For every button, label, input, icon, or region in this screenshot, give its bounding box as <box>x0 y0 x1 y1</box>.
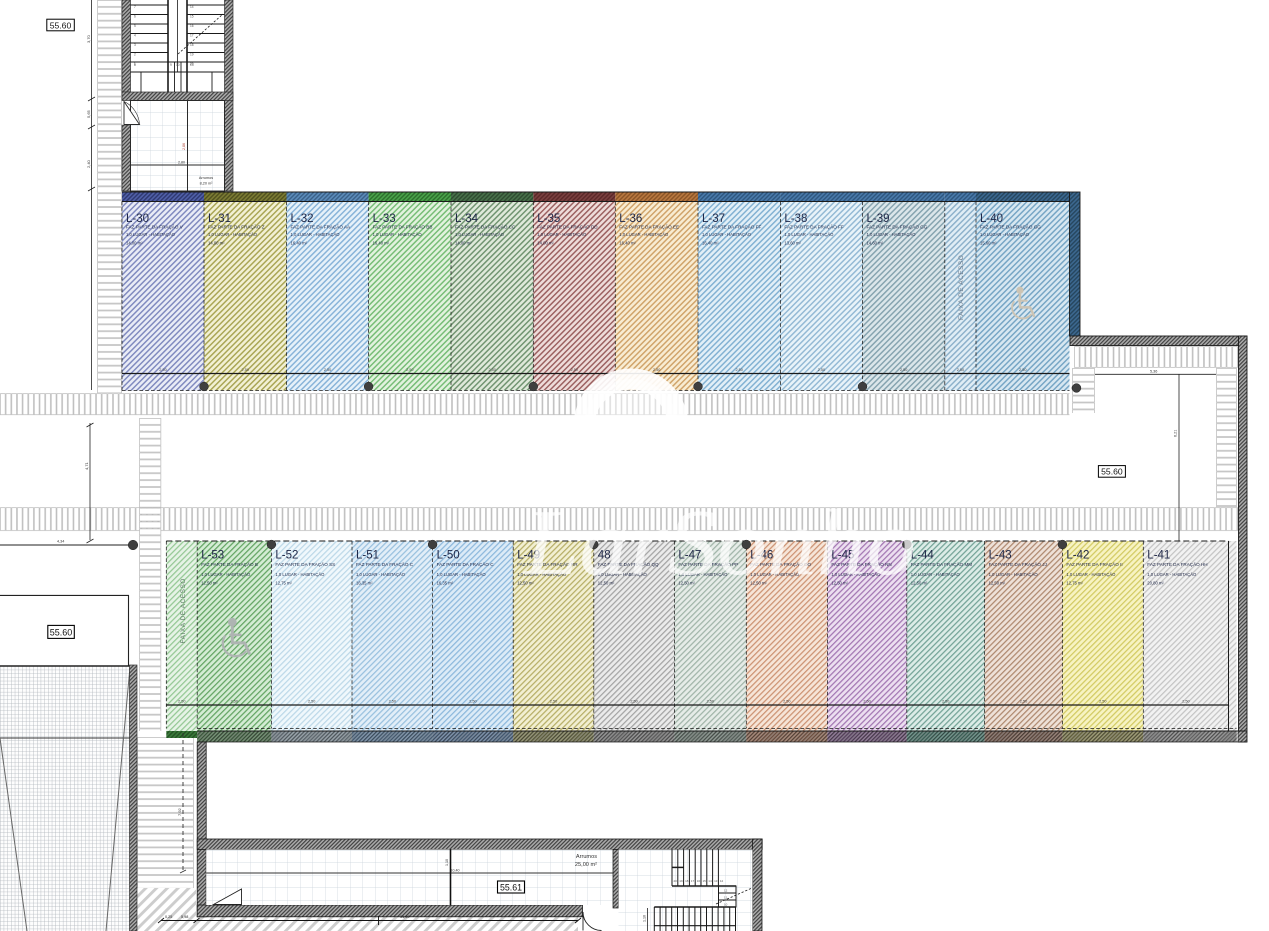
svg-text:14,60 m²: 14,60 m² <box>867 241 884 246</box>
svg-text:10: 10 <box>724 903 728 907</box>
svg-text:1,0 LUGAR - HABITAÇÃO: 1,0 LUGAR - HABITAÇÃO <box>437 572 487 577</box>
svg-text:18: 18 <box>685 879 689 883</box>
svg-text:2,50: 2,50 <box>406 368 413 372</box>
svg-text:2,50: 2,50 <box>942 700 949 704</box>
svg-text:12,50 m²: 12,50 m² <box>201 581 218 586</box>
svg-text:FAZ PARTE DA FRAÇÃO DD: FAZ PARTE DA FRAÇÃO DD <box>537 224 598 230</box>
svg-text:2,50: 2,50 <box>178 700 185 704</box>
svg-text:2,50: 2,50 <box>389 700 396 704</box>
svg-text:FAZ PARTE DA FRAÇÃO BB: FAZ PARTE DA FRAÇÃO BB <box>373 224 433 230</box>
svg-text:2,50: 2,50 <box>1099 700 1106 704</box>
svg-text:2,50: 2,50 <box>231 700 238 704</box>
svg-text:6,21: 6,21 <box>1174 430 1178 437</box>
svg-text:FAZ PARTE DA FRAÇÃO GG: FAZ PARTE DA FRAÇÃO GG <box>867 224 928 230</box>
svg-text:12,75 m²: 12,75 m² <box>1066 581 1083 586</box>
svg-text:2,50: 2,50 <box>242 368 249 372</box>
svg-text:7,92: 7,92 <box>177 807 182 816</box>
svg-text:1,0 LUGAR - HABITAÇÃO: 1,0 LUGAR - HABITAÇÃO <box>867 232 917 237</box>
svg-text:12,75 m²: 12,75 m² <box>275 581 292 586</box>
svg-text:1,0 LUGAR - HABITAÇÃO: 1,0 LUGAR - HABITAÇÃO <box>275 572 325 577</box>
svg-text:19: 19 <box>679 879 683 883</box>
svg-text:3: 3 <box>134 43 136 47</box>
svg-text:Arrumos: Arrumos <box>576 854 597 860</box>
svg-text:2,86: 2,86 <box>182 143 186 150</box>
svg-text:FAZ PARTE DA FRAÇÃO EE: FAZ PARTE DA FRAÇÃO EE <box>619 224 679 230</box>
svg-text:L-41: L-41 <box>1147 550 1170 562</box>
svg-text:20: 20 <box>674 879 678 883</box>
svg-text:3,70: 3,70 <box>86 34 91 43</box>
svg-text:FAZ PARTE DA FRAÇÃO JJ: FAZ PARTE DA FRAÇÃO JJ <box>989 561 1047 567</box>
svg-text:L-43: L-43 <box>989 550 1012 562</box>
svg-text:8: 8 <box>134 63 136 67</box>
svg-text:2,50: 2,50 <box>957 368 964 372</box>
svg-text:L-33: L-33 <box>373 213 396 225</box>
svg-text:L-36: L-36 <box>619 213 642 225</box>
svg-text:16,40 m²: 16,40 m² <box>619 241 636 246</box>
svg-text:L-32: L-32 <box>291 213 314 225</box>
svg-text:55.60: 55.60 <box>1101 467 1123 477</box>
svg-text:FAZ PARTE DA FRAÇÃO HH: FAZ PARTE DA FRAÇÃO HH <box>1147 561 1207 567</box>
svg-text:13: 13 <box>714 879 718 883</box>
svg-text:55.60: 55.60 <box>50 628 73 638</box>
svg-text:10,40: 10,40 <box>451 869 460 873</box>
svg-text:4,34: 4,34 <box>57 540 64 544</box>
svg-text:20,80 m²: 20,80 m² <box>1147 581 1164 586</box>
svg-text:FAZ PARTE DA FRAÇÃO AA: FAZ PARTE DA FRAÇÃO AA <box>291 224 351 230</box>
svg-text:16: 16 <box>190 24 194 28</box>
svg-text:18: 18 <box>190 43 194 47</box>
svg-text:15: 15 <box>190 15 194 19</box>
svg-text:1,0 LUGAR - HABITAÇÃO: 1,0 LUGAR - HABITAÇÃO <box>911 572 961 577</box>
svg-text:L-52: L-52 <box>275 550 298 562</box>
svg-text:FAZ PARTE DA FRAÇÃO FF: FAZ PARTE DA FRAÇÃO FF <box>702 224 761 230</box>
svg-text:11: 11 <box>724 896 727 900</box>
svg-text:2,50: 2,50 <box>324 368 331 372</box>
svg-text:5,36: 5,36 <box>1150 370 1157 374</box>
svg-text:1,0 LUGAR - HABITAÇÃO: 1,0 LUGAR - HABITAÇÃO <box>126 232 176 237</box>
svg-text:14,00 m²: 14,00 m² <box>126 241 143 246</box>
svg-text:FAZ PARTE DA FRAÇÃO FF: FAZ PARTE DA FRAÇÃO FF <box>784 224 843 230</box>
svg-text:2,50: 2,50 <box>159 368 166 372</box>
svg-text:4,71: 4,71 <box>84 461 89 470</box>
svg-text:L-34: L-34 <box>455 213 479 225</box>
svg-text:FAZ PARTE DA FRAÇÃO GG: FAZ PARTE DA FRAÇÃO GG <box>980 224 1041 230</box>
svg-text:16,40 m²: 16,40 m² <box>291 241 308 246</box>
svg-text:FAZ PARTE DA FRAÇÃO V: FAZ PARTE DA FRAÇÃO V <box>126 224 184 230</box>
svg-text:1,10: 1,10 <box>445 859 449 866</box>
svg-text:14: 14 <box>708 879 712 883</box>
svg-text:2,50: 2,50 <box>900 368 907 372</box>
svg-text:2,50: 2,50 <box>488 368 495 372</box>
svg-text:1,0 LUGAR - HABITAÇÃO: 1,0 LUGAR - HABITAÇÃO <box>373 232 423 237</box>
svg-text:Arrumos: Arrumos <box>199 176 213 180</box>
svg-text:6: 6 <box>134 15 136 19</box>
svg-text:1,0 LUGAR - HABITAÇÃO: 1,0 LUGAR - HABITAÇÃO <box>619 232 669 237</box>
svg-text:25,00 m²: 25,00 m² <box>575 862 597 868</box>
svg-text:2,80: 2,80 <box>178 161 185 165</box>
svg-text:16,40 m²: 16,40 m² <box>702 241 719 246</box>
svg-text:L-51: L-51 <box>356 550 379 562</box>
svg-text:15: 15 <box>703 879 707 883</box>
svg-text:L-40: L-40 <box>980 213 1003 225</box>
svg-text:15,60 m²: 15,60 m² <box>980 241 997 246</box>
svg-text:14,00 m²: 14,00 m² <box>208 241 225 246</box>
svg-text:16,35 m²: 16,35 m² <box>356 581 373 586</box>
svg-text:FAZ PARTE DA FRAÇÃO C: FAZ PARTE DA FRAÇÃO C <box>356 561 414 567</box>
svg-text:7: 7 <box>134 5 136 9</box>
svg-text:LarSonho: LarSonho <box>522 491 916 595</box>
svg-text:FAZ PARTE DA FRAÇÃO MM: FAZ PARTE DA FRAÇÃO MM <box>911 561 973 567</box>
svg-text:1,10: 1,10 <box>643 915 647 922</box>
svg-text:16,35 m²: 16,35 m² <box>437 581 454 586</box>
svg-text:1,0 LUGAR - HABITAÇÃO: 1,0 LUGAR - HABITAÇÃO <box>201 572 251 577</box>
svg-text:2,50: 2,50 <box>550 700 557 704</box>
svg-text:1,0 LUGAR - HABITAÇÃO: 1,0 LUGAR - HABITAÇÃO <box>291 232 341 237</box>
svg-text:2,50: 2,50 <box>818 368 825 372</box>
svg-text:FAIXA DE ACESSO: FAIXA DE ACESSO <box>958 255 965 320</box>
svg-text:2,50: 2,50 <box>1182 700 1189 704</box>
svg-text:L-31: L-31 <box>208 213 231 225</box>
svg-text:2: 2 <box>134 53 136 57</box>
svg-text:L-38: L-38 <box>784 213 807 225</box>
svg-text:L-39: L-39 <box>867 213 890 225</box>
svg-text:FAIXA DE ACESSO: FAIXA DE ACESSO <box>180 578 187 643</box>
svg-text:12,50 m²: 12,50 m² <box>989 581 1006 586</box>
svg-text:2,50: 2,50 <box>863 700 870 704</box>
svg-text:1,0 LUGAR - HABITAÇÃO: 1,0 LUGAR - HABITAÇÃO <box>980 232 1030 237</box>
svg-text:13: 13 <box>190 63 194 67</box>
svg-text:2,50: 2,50 <box>783 700 790 704</box>
svg-text:2,40: 2,40 <box>86 159 91 168</box>
svg-text:13,60 m²: 13,60 m² <box>784 241 801 246</box>
svg-text:10: 10 <box>176 63 180 67</box>
svg-text:55.60: 55.60 <box>50 20 72 30</box>
svg-text:1,0 LUGAR - HABITAÇÃO: 1,0 LUGAR - HABITAÇÃO <box>989 572 1039 577</box>
svg-text:16,40 m²: 16,40 m² <box>373 241 390 246</box>
svg-text:5,65: 5,65 <box>86 109 91 118</box>
svg-text:1,0 LUGAR - HABITAÇÃO: 1,0 LUGAR - HABITAÇÃO <box>1066 572 1116 577</box>
svg-text:1,0 LUGAR - HABITAÇÃO: 1,0 LUGAR - HABITAÇÃO <box>455 232 505 237</box>
svg-text:L-35: L-35 <box>537 213 560 225</box>
svg-text:5: 5 <box>134 24 136 28</box>
svg-text:FAZ PARTE DA FRAÇÃO C: FAZ PARTE DA FRAÇÃO C <box>437 561 495 567</box>
svg-text:L-53: L-53 <box>201 550 224 562</box>
svg-text:L-37: L-37 <box>702 213 725 225</box>
svg-text:2,50: 2,50 <box>571 368 578 372</box>
svg-text:2,50: 2,50 <box>707 700 714 704</box>
svg-text:FAZ PARTE DA FRAÇÃO CC: FAZ PARTE DA FRAÇÃO CC <box>455 224 516 230</box>
svg-text:2,50: 2,50 <box>653 368 660 372</box>
svg-text:2,50: 2,50 <box>630 700 637 704</box>
svg-text:1,0 LUGAR - HABITAÇÃO: 1,0 LUGAR - HABITAÇÃO <box>1147 572 1197 577</box>
svg-text:0,25: 0,25 <box>165 915 172 919</box>
svg-text:1,0 LUGAR - HABITAÇÃO: 1,0 LUGAR - HABITAÇÃO <box>208 232 258 237</box>
svg-text:14,00 m²: 14,00 m² <box>537 241 554 246</box>
svg-text:17: 17 <box>190 34 194 38</box>
svg-text:12: 12 <box>724 889 728 893</box>
svg-text:12: 12 <box>720 879 724 883</box>
svg-text:2,50: 2,50 <box>308 700 315 704</box>
svg-text:L-30: L-30 <box>126 213 149 225</box>
svg-text:FAZ PARTE DA FRAÇÃO Z: FAZ PARTE DA FRAÇÃO Z <box>208 224 265 230</box>
svg-text:1,0 LUGAR - HABITAÇÃO: 1,0 LUGAR - HABITAÇÃO <box>356 572 406 577</box>
svg-text:FAZ PARTE DA FRAÇÃO SS: FAZ PARTE DA FRAÇÃO SS <box>275 561 335 567</box>
svg-text:L-50: L-50 <box>437 550 460 562</box>
svg-text:8,20 m²: 8,20 m² <box>200 182 214 186</box>
svg-text:2,50: 2,50 <box>469 700 476 704</box>
svg-text:31,90: 31,90 <box>400 915 410 919</box>
svg-text:9: 9 <box>170 63 172 67</box>
svg-text:FAZ PARTE DA FRAÇÃO B: FAZ PARTE DA FRAÇÃO B <box>201 561 258 567</box>
svg-text:19: 19 <box>190 53 194 57</box>
svg-text:4: 4 <box>134 34 136 38</box>
svg-text:55.61: 55.61 <box>500 883 522 893</box>
svg-text:1,0 LUGAR - HABITAÇÃO: 1,0 LUGAR - HABITAÇÃO <box>702 232 752 237</box>
svg-text:2,50: 2,50 <box>736 368 743 372</box>
svg-text:17: 17 <box>691 879 695 883</box>
svg-text:1,0 LUGAR - HABITAÇÃO: 1,0 LUGAR - HABITAÇÃO <box>784 232 834 237</box>
svg-text:14,00 m²: 14,00 m² <box>455 241 472 246</box>
svg-text:2,50: 2,50 <box>1020 700 1027 704</box>
svg-text:5,98: 5,98 <box>181 915 188 919</box>
svg-text:2,50: 2,50 <box>1019 368 1026 372</box>
svg-text:L-42: L-42 <box>1066 550 1089 562</box>
svg-text:16: 16 <box>697 879 701 883</box>
svg-text:14: 14 <box>190 5 194 9</box>
svg-text:1,0 LUGAR - HABITAÇÃO: 1,0 LUGAR - HABITAÇÃO <box>537 232 587 237</box>
svg-text:FAZ PARTE DA FRAÇÃO II: FAZ PARTE DA FRAÇÃO II <box>1066 561 1122 567</box>
